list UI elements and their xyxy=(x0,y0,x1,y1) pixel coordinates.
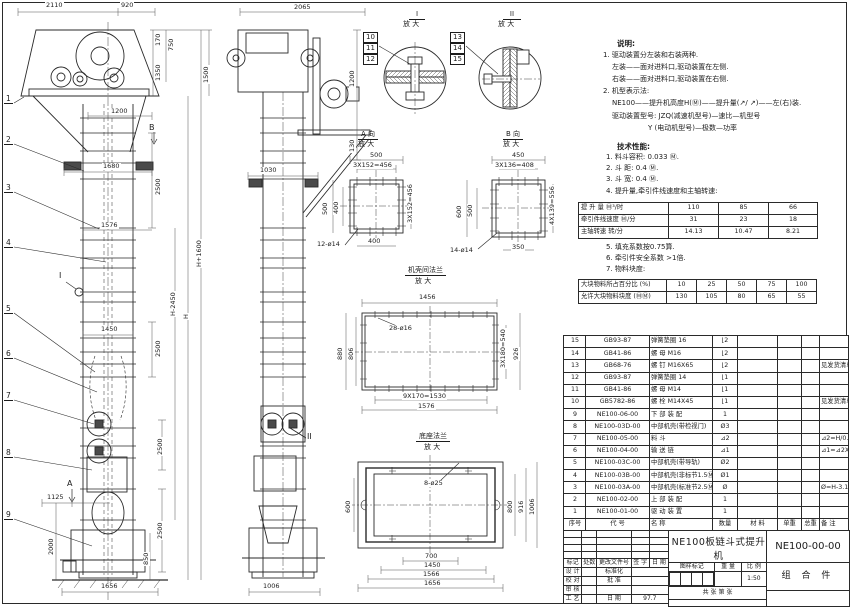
table-cell: 弹簧垫圈 16 xyxy=(650,336,713,348)
table-row: 7NE100-05-00料 斗⊿2⊿2=H/0.2+5.75 xyxy=(564,433,849,445)
stamp-header-mark: 图样标记 xyxy=(669,563,715,572)
detail-a-subtitle: 放 大 xyxy=(358,141,374,149)
dim-label: 806 xyxy=(348,347,355,361)
dim-label: 2500 xyxy=(155,177,162,196)
dim-label: H-2450 xyxy=(170,291,177,317)
dim-label: 4X139=556 xyxy=(549,185,556,226)
rev-header-sign: 签 字 xyxy=(631,559,649,568)
dim-label: 3X152=456 xyxy=(407,183,414,224)
table-cell: 18 xyxy=(769,215,818,227)
detail-ii-subtitle: 放 大 xyxy=(498,21,514,29)
table-cell: 25 xyxy=(697,280,727,292)
table-cell xyxy=(778,336,802,348)
table-cell: 31 xyxy=(669,215,719,227)
table-cell xyxy=(820,506,849,518)
base-flange-title: 底座法兰 xyxy=(416,433,450,442)
table-cell xyxy=(802,348,820,360)
dim-label: 500 xyxy=(467,204,474,218)
table-cell: GB41-86 xyxy=(586,348,650,360)
table-cell: GB93-87 xyxy=(586,372,650,384)
role-review: 审 核 xyxy=(564,586,582,595)
table-cell: NE100-04-00 xyxy=(586,445,650,457)
dim-label: 9X170=1530 xyxy=(402,393,447,400)
table-cell: 允许大块物料块度 (ⓂⓂ) xyxy=(579,292,667,304)
table-cell: 中部机壳(带检视门) xyxy=(650,421,713,433)
table-cell: 驱 动 装 置 xyxy=(650,506,713,518)
table-cell: 螺 母 M16 xyxy=(650,348,713,360)
lump-size-table: 大块物料所占百分比 (%)10255075100允许大块物料块度 (ⓂⓂ)130… xyxy=(578,279,817,304)
table-cell xyxy=(738,506,778,518)
dim-label: 3X136=408 xyxy=(494,162,535,169)
table-cell xyxy=(802,384,820,396)
spec-line: 7. 物料块度: xyxy=(606,266,645,274)
part-ref-5: 5 xyxy=(4,305,13,314)
spec-line: 2. 斗 距: 0.4 Ⓜ. xyxy=(606,165,658,173)
engineering-drawing-sheet: 2110 920 170 750 1350 1500 1200 1680 250… xyxy=(0,0,850,609)
part-ref-1: 1 xyxy=(4,95,13,104)
table-cell: ⌊2 xyxy=(713,360,738,372)
table-cell: 75 xyxy=(757,280,787,292)
table-cell xyxy=(802,421,820,433)
note-line: 2. 机型表示法: xyxy=(603,88,649,96)
role-craft: 工 艺 xyxy=(564,595,582,604)
table-cell xyxy=(778,396,802,408)
table-cell: GB68-76 xyxy=(586,360,650,372)
note-line: Y (电动机型号)—极数—功率 xyxy=(648,125,737,133)
table-cell: 中部机壳(带导轨) xyxy=(650,457,713,469)
table-cell: NE100-03A-00 xyxy=(586,482,650,494)
table-row: 6NE100-04-00输 送 链⊿1⊿1=⊿2X4 xyxy=(564,445,849,457)
table-cell: 名 称 xyxy=(650,518,713,530)
spec-line: 1. 料斗容积: 0.033 Ⓜ. xyxy=(606,154,679,162)
spec-line: 4. 提升量,牵引件线速度和主轴转速: xyxy=(606,188,718,196)
dim-label: 1200 xyxy=(349,69,356,88)
table-cell xyxy=(778,360,802,372)
table-cell: 中部机壳(非标节1.5Ⓜ及1Ⓜ) xyxy=(650,470,713,482)
view-marker-b: B xyxy=(148,124,156,132)
table-cell xyxy=(802,494,820,506)
dim-label: 850 xyxy=(143,552,150,566)
table-row: 12GB93-87弹簧垫圈 14⌊1 xyxy=(564,372,849,384)
table-cell: 弹簧垫圈 14 xyxy=(650,372,713,384)
table-cell xyxy=(738,372,778,384)
table-cell: 65 xyxy=(757,292,787,304)
dim-label: 926 xyxy=(513,347,520,361)
table-cell: NE100-05-00 xyxy=(586,433,650,445)
part-ref-13: 13 xyxy=(450,32,465,43)
rev-header-count: 处数 xyxy=(582,559,597,568)
table-cell: 1 xyxy=(564,506,586,518)
detail-b-title: B 向 xyxy=(503,131,523,140)
detail-marker-i: I xyxy=(58,272,62,280)
table-cell: 66 xyxy=(769,203,818,215)
title-block-revision-area: 标记 处数 更改文件号 签 字 日 期 设 计标准化 校 对批 准 审 核 工 … xyxy=(563,530,669,604)
table-cell xyxy=(738,433,778,445)
detail-b-subtitle: 放 大 xyxy=(503,141,519,149)
sheet-count: 共 张 第 张 xyxy=(669,587,767,600)
table-cell xyxy=(802,506,820,518)
part-ref-9: 9 xyxy=(4,511,13,520)
table-cell: 2 xyxy=(564,494,586,506)
table-cell: 螺 钉 M16X65 xyxy=(650,360,713,372)
table-cell: 11 xyxy=(564,384,586,396)
dim-label: 14-ø14 xyxy=(449,247,474,254)
table-cell: 输 送 链 xyxy=(650,445,713,457)
table-cell: NE100-02-00 xyxy=(586,494,650,506)
stamp-header-weight: 重 量 xyxy=(715,563,741,572)
dim-label: 400 xyxy=(333,201,340,215)
table-cell: NE100-01-00 xyxy=(586,506,650,518)
table-cell: 见发货清单 xyxy=(820,396,849,408)
table-cell xyxy=(820,372,849,384)
dim-label: 1006 xyxy=(529,497,536,516)
table-cell: 备 注 xyxy=(820,518,849,530)
dim-label: 1656 xyxy=(423,580,442,587)
table-cell xyxy=(820,384,849,396)
spec-line: 6. 牵引件安全系数 >1倍. xyxy=(606,255,686,263)
dim-label: H+1600 xyxy=(196,239,203,268)
table-cell xyxy=(820,494,849,506)
drawing-category: 组 合 件 xyxy=(767,563,849,591)
table-cell: ⊿1 xyxy=(713,445,738,457)
table-cell xyxy=(738,494,778,506)
dim-label: 1456 xyxy=(418,294,437,301)
dim-label: 1680 xyxy=(102,163,121,170)
table-cell: 50 xyxy=(727,280,757,292)
notes-heading: 说明: xyxy=(617,38,635,49)
table-cell: 1 xyxy=(713,409,738,421)
table-cell: 材 料 xyxy=(738,518,778,530)
dim-label: 1656 xyxy=(100,583,119,590)
base-flange-subtitle: 放 大 xyxy=(424,444,440,452)
table-cell: 8.21 xyxy=(769,227,818,239)
table-cell: 55 xyxy=(787,292,817,304)
table-cell: ⊿2=H/0.2+5.75 xyxy=(820,433,849,445)
dim-label: 1450 xyxy=(423,562,442,569)
performance-table: 提 升 量 Ⓜ³/时1108566牵引件线速度 Ⓜ/分312318主轴转速 转/… xyxy=(578,202,818,239)
table-cell: NE100-03B-00 xyxy=(586,470,650,482)
table-cell: 100 xyxy=(787,280,817,292)
dim-label: 916 xyxy=(518,500,525,514)
table-cell: Ø3 xyxy=(713,421,738,433)
table-cell: 10.47 xyxy=(719,227,769,239)
table-cell: 110 xyxy=(669,203,719,215)
table-cell: Ø xyxy=(713,482,738,494)
table-row: 4NE100-03B-00中部机壳(非标节1.5Ⓜ及1Ⓜ)Ø1 xyxy=(564,470,849,482)
table-row: 15GB93-87弹簧垫圈 16⌊2 xyxy=(564,336,849,348)
table-row: 提 升 量 Ⓜ³/时1108566 xyxy=(579,203,818,215)
table-cell: 代 号 xyxy=(586,518,650,530)
table-cell xyxy=(778,494,802,506)
role-design: 设 计 xyxy=(564,568,582,577)
table-cell xyxy=(802,445,820,457)
table-cell: ⌊2 xyxy=(713,348,738,360)
table-row: 8NE100-03D-00中部机壳(带检视门)Ø3 xyxy=(564,421,849,433)
table-cell: 10 xyxy=(667,280,697,292)
table-cell xyxy=(738,457,778,469)
dim-label: 350 xyxy=(511,244,525,251)
table-cell: 提 升 量 Ⓜ³/时 xyxy=(579,203,669,215)
table-cell xyxy=(820,421,849,433)
table-cell: ⊿1=⊿2X4 xyxy=(820,445,849,457)
table-cell: 4 xyxy=(564,470,586,482)
date-label: 日 期 xyxy=(597,595,631,604)
table-cell: 7 xyxy=(564,433,586,445)
table-cell: 12 xyxy=(564,372,586,384)
dim-label: 12-ø14 xyxy=(316,241,341,248)
title-block-right: NE100-00-00 组 合 件 xyxy=(766,530,850,607)
table-cell xyxy=(738,336,778,348)
drawing-title-line1: NE100板链斗式提升机 xyxy=(669,531,768,562)
table-cell xyxy=(778,372,802,384)
table-cell xyxy=(802,396,820,408)
table-row: 3NE100-03A-00中部机壳(标准节2.5Ⓜ)ØØ=H-3.15/2.5 xyxy=(564,482,849,494)
dim-label: 450 xyxy=(511,152,525,159)
dim-label: 2500 xyxy=(157,521,164,540)
part-ref-7: 7 xyxy=(4,392,13,401)
view-marker-a: A xyxy=(66,480,73,488)
table-row: 2NE100-02-00上 部 装 配1 xyxy=(564,494,849,506)
title-block-stamp: 图样标记 重 量 比 例 1:50 共 张 第 张 xyxy=(668,562,767,600)
rev-header-mark: 标记 xyxy=(564,559,582,568)
dim-label: 2000 xyxy=(48,537,55,556)
part-ref-2: 2 xyxy=(4,136,13,145)
part-ref-6: 6 xyxy=(4,350,13,359)
table-cell: ⌊1 xyxy=(713,372,738,384)
table-cell xyxy=(802,360,820,372)
part-ref-3: 3 xyxy=(4,184,13,193)
table-cell xyxy=(738,482,778,494)
table-cell xyxy=(802,336,820,348)
table-cell: 螺 栓 M14X45 xyxy=(650,396,713,408)
table-cell: Ø=H-3.15/2.5 xyxy=(820,482,849,494)
table-row: 13GB68-76螺 钉 M16X65⌊2见发货清单 xyxy=(564,360,849,372)
table-cell: 中部机壳(标准节2.5Ⓜ) xyxy=(650,482,713,494)
table-cell: 数量 xyxy=(713,518,738,530)
role-standard: 标准化 xyxy=(597,568,631,577)
table-cell: 14.13 xyxy=(669,227,719,239)
dim-label: 1006 xyxy=(262,583,281,590)
detail-i-subtitle: 放 大 xyxy=(403,21,419,29)
detail-i-title: I xyxy=(409,11,425,20)
dim-label: 700 xyxy=(424,553,438,560)
dim-label: 3X180=540 xyxy=(500,328,507,369)
table-cell xyxy=(738,470,778,482)
dim-label: 1200 xyxy=(110,108,129,115)
dim-label: 2065 xyxy=(293,4,312,11)
specs-heading: 技术性能: xyxy=(617,141,650,152)
table-cell: 130 xyxy=(667,292,697,304)
table-cell: 6 xyxy=(564,445,586,457)
table-cell: ⌊1 xyxy=(713,396,738,408)
table-row: 序号代 号名 称数量材 料单重总重备 注 xyxy=(564,518,849,530)
part-ref-4: 4 xyxy=(4,239,13,248)
table-cell: GB5782-86 xyxy=(586,396,650,408)
rev-header-doc: 更改文件号 xyxy=(597,559,631,568)
table-row: 9NE100-06-00下 部 装 配1 xyxy=(564,409,849,421)
table-cell: 单重 xyxy=(778,518,802,530)
table-cell: 85 xyxy=(719,203,769,215)
spec-line: 5. 填充系数按0.75算. xyxy=(606,244,675,252)
table-cell xyxy=(820,336,849,348)
dim-label: 28-ø16 xyxy=(388,325,413,332)
stamp-header-scale: 比 例 xyxy=(741,563,766,572)
table-cell xyxy=(738,384,778,396)
table-cell xyxy=(778,433,802,445)
dim-label: 170 xyxy=(155,33,162,47)
part-ref-12: 12 xyxy=(363,54,378,65)
table-cell xyxy=(820,457,849,469)
table-cell: 3 xyxy=(564,482,586,494)
table-cell: GB93-87 xyxy=(586,336,650,348)
note-line: 驱动装置型号: JZQ(减速机型号)—速比—机型号 xyxy=(612,113,760,121)
note-line: NE100——提升机高度H(Ⓜ)——提升量(↗/ ↗)——左(右)装. xyxy=(612,100,801,108)
table-cell: ⊿2 xyxy=(713,433,738,445)
table-cell xyxy=(820,348,849,360)
table-cell: 见发货清单 xyxy=(820,360,849,372)
table-cell xyxy=(820,409,849,421)
table-cell: 料 斗 xyxy=(650,433,713,445)
dim-label: H xyxy=(183,313,190,320)
part-ref-15: 15 xyxy=(450,54,465,65)
table-row: 14GB41-86螺 母 M16⌊2 xyxy=(564,348,849,360)
parts-list-table: 15GB93-87弹簧垫圈 16⌊214GB41-86螺 母 M16⌊213GB… xyxy=(563,335,849,531)
casing-flange-title: 机壳间法兰 xyxy=(405,267,446,276)
table-row: 1NE100-01-00驱 动 装 置1 xyxy=(564,506,849,518)
part-ref-8: 8 xyxy=(4,449,13,458)
dim-label: 1566 xyxy=(422,571,441,578)
date-value: 97.7 xyxy=(631,595,668,604)
table-cell: 上 部 装 配 xyxy=(650,494,713,506)
dim-label: 1030 xyxy=(259,167,278,174)
table-cell: NE100-06-00 xyxy=(586,409,650,421)
dim-label: 1450 xyxy=(100,326,119,333)
table-cell: ⌊2 xyxy=(713,336,738,348)
table-cell: ⌊1 xyxy=(713,384,738,396)
role-approve: 批 准 xyxy=(597,577,631,586)
dim-label: 1350 xyxy=(155,63,162,82)
role-check: 校 对 xyxy=(564,577,582,586)
drawing-number: NE100-00-00 xyxy=(767,531,849,563)
table-cell xyxy=(778,409,802,421)
table-cell: 15 xyxy=(564,336,586,348)
table-cell: 大块物料所占百分比 (%) xyxy=(579,280,667,292)
table-cell: 8 xyxy=(564,421,586,433)
table-cell xyxy=(778,506,802,518)
dim-label: 2500 xyxy=(155,339,162,358)
dim-label: 8-ø25 xyxy=(423,480,444,487)
dim-label: 2500 xyxy=(157,437,164,456)
table-cell xyxy=(738,360,778,372)
table-cell: 序号 xyxy=(564,518,586,530)
table-row: 牵引件线速度 Ⓜ/分312318 xyxy=(579,215,818,227)
table-cell: 14 xyxy=(564,348,586,360)
table-cell xyxy=(778,445,802,457)
table-cell xyxy=(778,482,802,494)
table-cell xyxy=(738,445,778,457)
dim-label: 1576 xyxy=(100,222,119,229)
table-cell xyxy=(802,372,820,384)
table-cell xyxy=(778,457,802,469)
table-cell xyxy=(778,348,802,360)
dim-label: 600 xyxy=(345,500,352,514)
dim-label: 750 xyxy=(168,38,175,52)
table-cell: 23 xyxy=(719,215,769,227)
table-cell: 1 xyxy=(713,494,738,506)
table-cell xyxy=(802,482,820,494)
dim-label: 1576 xyxy=(417,403,436,410)
detail-ii-title: II xyxy=(503,11,521,20)
table-cell: Ø1 xyxy=(713,470,738,482)
dim-label: 400 xyxy=(367,238,381,245)
table-cell: 9 xyxy=(564,409,586,421)
table-cell: 下 部 装 配 xyxy=(650,409,713,421)
table-row: 11GB41-86螺 母 M14⌊1 xyxy=(564,384,849,396)
table-cell xyxy=(738,421,778,433)
dim-label: 3X152=456 xyxy=(352,162,393,169)
dim-label: 880 xyxy=(337,347,344,361)
table-cell xyxy=(778,421,802,433)
table-cell: 牵引件线速度 Ⓜ/分 xyxy=(579,215,669,227)
rev-header-date: 日 期 xyxy=(649,559,668,568)
table-cell xyxy=(738,409,778,421)
table-cell xyxy=(820,470,849,482)
detail-marker-ii: II xyxy=(306,433,313,441)
dim-label: 1500 xyxy=(203,65,210,84)
table-row: 允许大块物料块度 (ⓂⓂ)130105806555 xyxy=(579,292,817,304)
dim-label: 1125 xyxy=(46,494,65,501)
dim-label: 500 xyxy=(369,152,383,159)
table-cell xyxy=(802,457,820,469)
table-cell: 1 xyxy=(713,506,738,518)
dim-label: 800 xyxy=(507,500,514,514)
table-cell xyxy=(802,409,820,421)
table-cell: 5 xyxy=(564,457,586,469)
table-cell xyxy=(802,470,820,482)
table-cell: 80 xyxy=(727,292,757,304)
table-cell: 105 xyxy=(697,292,727,304)
table-cell xyxy=(738,348,778,360)
table-cell xyxy=(802,433,820,445)
part-ref-10: 10 xyxy=(363,32,378,43)
dim-label: 2110 xyxy=(45,2,64,9)
note-line: 左装——面对进料口,驱动装置在左侧. xyxy=(612,64,728,72)
table-cell: Ø2 xyxy=(713,457,738,469)
table-row: 10GB5782-86螺 栓 M14X45⌊1见发货清单 xyxy=(564,396,849,408)
note-line: 1. 驱动装置分左装和右装两种. xyxy=(603,52,698,60)
note-line: 右装——面对进料口,驱动装置在右侧. xyxy=(612,76,728,84)
table-cell: GB41-86 xyxy=(586,384,650,396)
dim-label: 920 xyxy=(120,2,134,9)
table-cell: 10 xyxy=(564,396,586,408)
dim-label: 130 xyxy=(349,139,356,153)
table-cell: NE100-03C-00 xyxy=(586,457,650,469)
table-row: 大块物料所占百分比 (%)10255075100 xyxy=(579,280,817,292)
table-cell: 13 xyxy=(564,360,586,372)
detail-a-title: A 向 xyxy=(358,131,378,140)
part-ref-14: 14 xyxy=(450,43,465,54)
table-cell xyxy=(738,396,778,408)
dim-label: 600 xyxy=(456,205,463,219)
casing-flange-subtitle: 放 大 xyxy=(415,278,431,286)
table-cell xyxy=(778,384,802,396)
table-row: 5NE100-03C-00中部机壳(带导轨)Ø2 xyxy=(564,457,849,469)
spec-line: 3. 斗 宽: 0.4 Ⓜ. xyxy=(606,176,658,184)
table-cell: 总重 xyxy=(802,518,820,530)
table-cell: NE100-03D-00 xyxy=(586,421,650,433)
part-ref-11: 11 xyxy=(363,43,378,54)
table-cell: 螺 母 M14 xyxy=(650,384,713,396)
